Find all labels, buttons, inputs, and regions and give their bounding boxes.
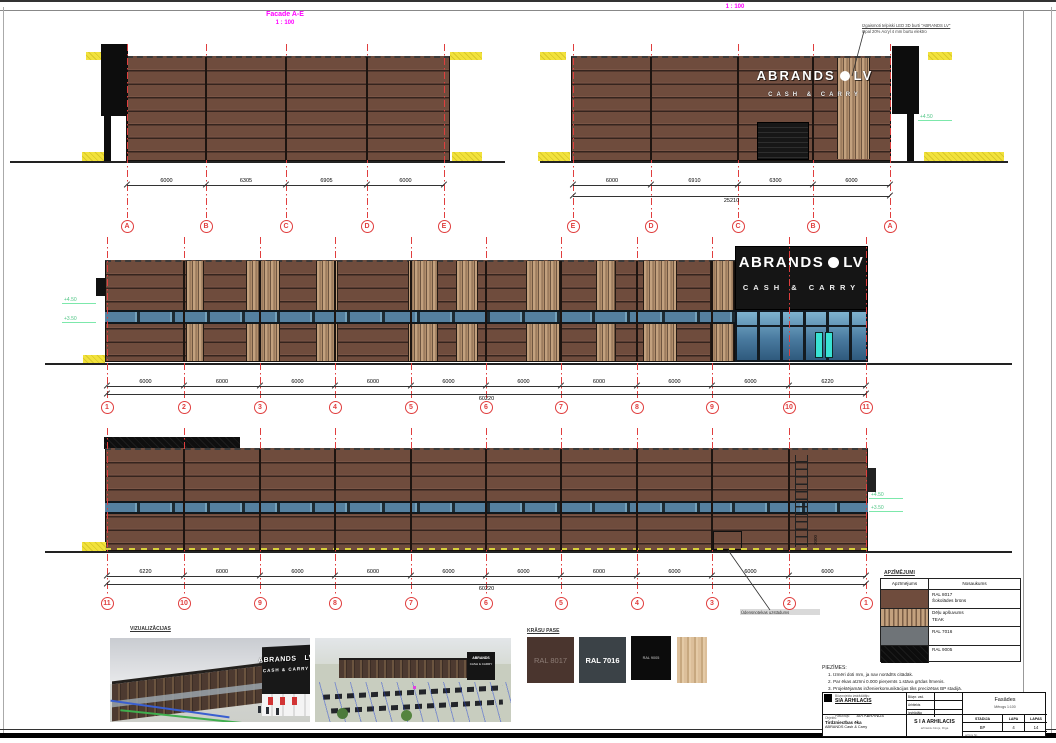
dim-label: 6000 xyxy=(504,569,544,575)
dim-tick xyxy=(408,383,414,389)
dim-label: 6910 xyxy=(675,178,715,184)
facade-ae-pylon xyxy=(101,44,128,116)
dim-label: 6000 xyxy=(126,379,166,385)
dim-label: 6000 xyxy=(579,569,619,575)
facade-ea-sign-line2: CASH & CARRY xyxy=(742,92,888,98)
grid-bubble: 11 xyxy=(101,597,114,610)
legend-header-symbol: Apzīmējums xyxy=(881,579,929,589)
sign-annotation-line1: Izgaismoti telpiski LED 3D burti "ABRAND… xyxy=(862,23,982,28)
ground-hatch xyxy=(83,355,105,363)
dim-tick xyxy=(124,182,130,188)
grid-bubble: 10 xyxy=(783,401,796,414)
sign-brand-text: ABRANDS xyxy=(757,68,836,83)
legend-row-text: RAL 7016 xyxy=(929,627,1020,645)
dim-tick xyxy=(786,573,792,579)
dim-tick xyxy=(887,193,893,199)
dim-label: 6300 xyxy=(756,178,796,184)
dim-line xyxy=(107,576,866,577)
tb-stage-label: STADIJA xyxy=(963,715,1003,722)
legend-row-name: Dēļu apšuvums xyxy=(932,610,1020,617)
tb-scale: Mērogs 1:100 xyxy=(963,705,1047,709)
dim-total-label: 60220 xyxy=(462,396,512,402)
drawing-sheet: { "titles": { "facade_ae": "Facade A-E",… xyxy=(0,0,1056,743)
dim-label: 6000 xyxy=(429,379,469,385)
facade-ea-scale: 1 : 100 xyxy=(700,4,770,10)
dim-tick xyxy=(570,193,576,199)
dim-tick xyxy=(709,383,715,389)
swatch-ral-9005: RAL 9005 xyxy=(631,636,671,680)
facade-ae-pylon-gap xyxy=(111,116,127,161)
facade-f1-wall-attachment xyxy=(96,278,105,296)
krasu-pase-label: KRĀSU PASE xyxy=(527,628,559,634)
render1-sign-line2: CASH & CARRY xyxy=(262,666,310,674)
dim-label: 6305 xyxy=(226,178,266,184)
swatch-ral-7016: RAL 7016 xyxy=(579,637,626,683)
legend-swatch xyxy=(881,646,929,664)
dim-tick xyxy=(181,573,187,579)
dim-label: 6000 xyxy=(386,178,426,184)
dim-label: 6000 xyxy=(353,569,393,575)
grid-bubble: 10 xyxy=(178,597,191,610)
visuals-label: VIZUALIZĀCIJAS xyxy=(130,626,171,632)
tb-sheets-label: LAPAS xyxy=(1025,715,1047,722)
frame-right-line xyxy=(1051,7,1052,737)
facade-f2-roof-box xyxy=(867,468,876,492)
dim-total-line xyxy=(107,584,866,585)
dim-label: 6905 xyxy=(307,178,347,184)
tb-sheet-title: Fasādes xyxy=(963,697,1047,703)
ground-hatch xyxy=(540,52,566,60)
dim-label: 6000 xyxy=(278,379,318,385)
dim-tick xyxy=(863,581,869,587)
legend-row-text: RAL 9005 xyxy=(929,646,1020,664)
render2-marker-magenta xyxy=(413,686,416,689)
legend-row-desc: TEAK xyxy=(932,617,1020,624)
grid-bubble: 7 xyxy=(555,401,568,414)
grid-bubble: D xyxy=(645,220,658,233)
sign-brand-text: ABRANDS xyxy=(739,254,825,271)
render-perspective-1: ABRANDS LV CASH & CARRY xyxy=(110,638,310,722)
tb-stage-header-row: STADIJA LAPA LAPAS xyxy=(963,715,1047,723)
grid-bubble: 2 xyxy=(178,401,191,414)
facade-ae-wall xyxy=(127,56,450,161)
facade-ea-roller-door xyxy=(757,122,809,160)
render2-building xyxy=(339,658,485,678)
grid-bubble: E xyxy=(567,220,580,233)
grid-bubble: C xyxy=(732,220,745,233)
grid-bubble: 11 xyxy=(860,401,873,414)
dim-total-label: 60220 xyxy=(462,586,512,592)
note-item: 2. Par ēkas atzīmi 0.000 pieņemts 1.stāv… xyxy=(828,679,1038,686)
tb-role-row: Būvpr. vad. xyxy=(907,693,962,701)
entrance-door-pane xyxy=(825,332,833,358)
grid-bubble: 1 xyxy=(101,401,114,414)
level-marker: +4.50 xyxy=(918,114,952,121)
legend-row: RAL 8017Šokolādes brūns xyxy=(881,589,1020,608)
dim-label: 6220 xyxy=(808,379,848,385)
tb-roles-table: Būvpr. vad.ArhitektsIzstrādāja xyxy=(907,693,963,715)
swatch-ral-8017-label: RAL 8017 xyxy=(534,656,567,665)
facade-f2-base-strip xyxy=(105,548,868,550)
dim-label: 6000 xyxy=(147,178,187,184)
sign-dot xyxy=(840,71,850,81)
notes-label: PIEZĪMES: xyxy=(822,665,847,671)
dim-tick xyxy=(863,391,869,397)
dim-label: 6000 xyxy=(202,569,242,575)
facade-f2-window-band xyxy=(105,501,868,514)
render1-sign-box: ABRANDS LV CASH & CARRY xyxy=(262,645,310,700)
tb-company-cell: Būvprojekta izstrādātājs: SIA ARHILACIS … xyxy=(823,693,907,715)
legend-swatch xyxy=(881,609,929,627)
render1-figure xyxy=(258,706,261,713)
grid-bubble: 9 xyxy=(254,597,267,610)
dim-tick xyxy=(332,383,338,389)
dim-label: 6000 xyxy=(353,379,393,385)
dim-tick xyxy=(558,573,564,579)
facade-f2-ladder xyxy=(795,455,808,547)
note-item: 1. Izmēri doti mm, ja nav norādīts citād… xyxy=(828,672,1038,679)
level-marker: +3.50 xyxy=(869,505,903,512)
dim-tick xyxy=(483,383,489,389)
grid-bubble: 3 xyxy=(706,597,719,610)
grid-bubble: C xyxy=(280,220,293,233)
render2-sign-line1: ABRANDS xyxy=(467,656,495,660)
grid-bubble: 8 xyxy=(329,597,342,610)
facade-f2-wall xyxy=(105,448,868,551)
title-block: Būvprojekta izstrādātājs: SIA ARHILACIS … xyxy=(822,692,1046,737)
sign-annotation-line2: Opal 20% Acryl 4 mm burtu elektro xyxy=(862,29,982,34)
facade-ae-pylon-column xyxy=(104,116,111,161)
grid-bubble: B xyxy=(200,220,213,233)
dim-tick xyxy=(634,573,640,579)
legend-row: RAL 9005 xyxy=(881,645,1020,664)
legend-row: RAL 7016 xyxy=(881,626,1020,645)
ground-hatch xyxy=(82,542,106,551)
grid-bubble: B xyxy=(807,220,820,233)
tb-role-value xyxy=(935,701,962,708)
dim-tick xyxy=(257,573,263,579)
level-marker: +3.50 xyxy=(62,316,96,323)
tb-role-label: Būvpr. vad. xyxy=(907,693,935,700)
frame-right-inner-line xyxy=(1023,10,1024,732)
grid-bubble: 4 xyxy=(329,401,342,414)
dim-total-line xyxy=(107,394,866,395)
facade-f1-sign-line2: CASH & CARRY xyxy=(735,283,868,292)
grid-bubble: 4 xyxy=(631,597,644,610)
legend-row-text: Dēļu apšuvumsTEAK xyxy=(929,609,1020,627)
legend-row-desc: Šokolādes brūns xyxy=(932,598,1020,605)
ground-hatch xyxy=(82,152,104,161)
legend-label: APZĪMĒJUMI xyxy=(884,570,915,576)
tb-archive: arhīvs Nr. xyxy=(963,732,1047,738)
dim-total-line xyxy=(573,196,890,197)
storefront-transom-line xyxy=(737,325,866,327)
sign-suffix-text: LV xyxy=(854,68,874,83)
facade-ea-pylon-column xyxy=(907,114,914,161)
grid-bubble: A xyxy=(884,220,897,233)
storefront-mullions xyxy=(737,312,866,360)
dim-tick xyxy=(570,182,576,188)
swatch-ral-8017: RAL 8017 xyxy=(527,637,574,683)
tb-sheet-title-cell: Fasādes Mērogs 1:100 xyxy=(963,693,1047,715)
tb-top-band: Būvprojekta izstrādātājs: SIA ARHILACIS … xyxy=(823,693,1047,715)
facade-ae-title: Facade A-E xyxy=(230,11,340,18)
sign-suffix-text: LV xyxy=(305,655,310,662)
tb-object-cell: Objekts: Tirdzniecības ēka ABRANDS Cash … xyxy=(823,715,907,737)
swatch-ral-9005-label: RAL 9005 xyxy=(643,656,660,660)
ground-line xyxy=(10,161,505,163)
render1-poster xyxy=(268,697,273,705)
dim-line xyxy=(127,185,444,186)
grid-bubble: 6 xyxy=(480,401,493,414)
legend-row: Dēļu apšuvumsTEAK xyxy=(881,608,1020,627)
dim-tick xyxy=(257,383,263,389)
tb-logo xyxy=(824,694,832,702)
facade-f1-window-band xyxy=(105,310,735,324)
dim-tick xyxy=(709,573,715,579)
dim-total-label: 25210 xyxy=(707,198,757,204)
tb-bottom-band: Objekts: Tirdzniecības ēka ABRANDS Cash … xyxy=(823,715,1047,737)
dim-label: 6000 xyxy=(655,379,695,385)
level-marker: +4.50 xyxy=(869,492,903,499)
legend-header-row: Apzīmējums Nosaukums xyxy=(881,579,1020,589)
legend-row-text: RAL 8017Šokolādes brūns xyxy=(929,590,1020,608)
dim-tick xyxy=(104,573,110,579)
frame-top-line-2 xyxy=(0,10,1056,11)
tb-stage-value: BP xyxy=(963,723,1003,731)
dim-label: 6000 xyxy=(429,569,469,575)
tb-sheets-value: 14 xyxy=(1025,723,1047,731)
grid-bubble: 1 xyxy=(860,597,873,610)
dim-tick xyxy=(863,383,869,389)
dim-tick xyxy=(558,383,564,389)
grid-bubble: A xyxy=(121,220,134,233)
dim-tick xyxy=(283,182,289,188)
grid-bubble: 8 xyxy=(631,401,644,414)
frame-top-line xyxy=(0,0,1056,2)
dim-tick xyxy=(887,182,893,188)
ground-hatch xyxy=(924,152,1004,161)
dim-tick xyxy=(203,182,209,188)
dim-line xyxy=(107,386,866,387)
tb-firm-cell: S I A ARHILACIS arhitektu birojs, Rīga xyxy=(907,715,963,737)
grid-bubble: D xyxy=(361,220,374,233)
dim-tick xyxy=(104,391,110,397)
dim-label: 6000 xyxy=(731,569,771,575)
render2-sign-box: ABRANDS CASH & CARRY xyxy=(467,652,495,680)
tb-stage-cell: STADIJA LAPA LAPAS BP 4 14 arhīvs Nr. xyxy=(963,715,1047,737)
dim-label: 6000 xyxy=(832,178,872,184)
dim-tick xyxy=(104,383,110,389)
dim-tick xyxy=(408,573,414,579)
dim-label: 6000 xyxy=(731,379,771,385)
ground-hatch xyxy=(538,152,570,161)
tb-stage-values-row: BP 4 14 xyxy=(963,723,1047,732)
grid-bubble: 6 xyxy=(480,597,493,610)
dim-tick xyxy=(786,383,792,389)
dim-tick xyxy=(483,573,489,579)
legend-row-name: RAL 9005 xyxy=(932,647,1020,654)
ground-hatch xyxy=(928,52,952,60)
dim-tick xyxy=(104,581,110,587)
grid-bubble: 9 xyxy=(706,401,719,414)
legend-row-name: RAL 7016 xyxy=(932,629,1020,636)
swatch-ral-7016-label: RAL 7016 xyxy=(585,656,619,665)
door-note-label: Ūdensnotekas uzstādums xyxy=(740,609,820,615)
render2-tree xyxy=(337,708,348,719)
dim-tick xyxy=(735,182,741,188)
frame-left-line xyxy=(3,7,4,737)
sign-brand-text: ABRANDS xyxy=(258,655,297,664)
dim-tick xyxy=(810,182,816,188)
dim-label: 6000 xyxy=(808,569,848,575)
ground-hatch xyxy=(450,52,482,60)
tb-sheet-label: LAPA xyxy=(1003,715,1025,722)
dim-tick xyxy=(863,573,869,579)
ladder-dim-label: 3000 xyxy=(813,535,818,545)
grid-bubble: 7 xyxy=(405,597,418,610)
facade-ea-sign-line1: ABRANDS LV xyxy=(742,68,888,83)
dim-label: 6000 xyxy=(579,379,619,385)
facade-f1-storefront xyxy=(735,310,868,362)
tb-role-label: Arhitekts xyxy=(907,701,935,708)
sign-suffix-text: LV xyxy=(843,254,864,271)
tb-firm: S I A ARHILACIS xyxy=(907,719,962,725)
ground-line xyxy=(45,363,1012,365)
tb-role-value xyxy=(935,693,962,700)
facade-f1-sign-line1: ABRANDS LV xyxy=(735,254,868,271)
legend-rows: RAL 8017Šokolādes brūnsDēļu apšuvumsTEAK… xyxy=(881,589,1020,663)
ground-line xyxy=(45,551,1012,553)
grid-bubble: E xyxy=(438,220,451,233)
render2-sign-line2: CASH & CARRY xyxy=(467,662,495,666)
dim-label: 6220 xyxy=(126,569,166,575)
dim-tick xyxy=(441,182,447,188)
dim-tick xyxy=(364,182,370,188)
grid-bubble: 5 xyxy=(405,401,418,414)
dim-label: 6000 xyxy=(278,569,318,575)
ground-line xyxy=(540,161,1008,163)
legend-swatch xyxy=(881,627,929,645)
dim-line xyxy=(573,185,890,186)
entrance-door-pane xyxy=(815,332,823,358)
ground-hatch xyxy=(452,152,482,161)
tb-company: SIA ARHILACIS xyxy=(835,698,904,704)
dim-tick xyxy=(648,182,654,188)
legend-swatch xyxy=(881,590,929,608)
grid-bubble: 5 xyxy=(555,597,568,610)
facade-ae-scale: 1 : 100 xyxy=(230,20,340,26)
grid-bubble: 3 xyxy=(254,401,267,414)
level-marker: +4.50 xyxy=(62,297,96,304)
render-aerial-2: ABRANDS CASH & CARRY xyxy=(315,638,511,722)
tb-sheet-value: 4 xyxy=(1003,723,1025,731)
facade-ea-pylon xyxy=(892,46,919,114)
dim-tick xyxy=(634,383,640,389)
sign-dot xyxy=(828,257,839,268)
dim-tick xyxy=(181,383,187,389)
render1-sign-line1: ABRANDS LV xyxy=(262,655,310,665)
tb-object-sub: ABRANDS Cash & Carry xyxy=(825,725,904,729)
dim-label: 6000 xyxy=(655,569,695,575)
dim-label: 6000 xyxy=(592,178,632,184)
legend-header-name: Nosaukums xyxy=(929,579,1020,589)
tb-role-row: Arhitekts xyxy=(907,701,962,709)
dim-tick xyxy=(332,573,338,579)
legend-table: Apzīmējums Nosaukums RAL 8017Šokolādes b… xyxy=(880,578,1021,662)
tb-firm-sub: arhitektu birojs, Rīga xyxy=(907,726,962,730)
swatch-teak xyxy=(677,637,707,683)
dim-label: 6000 xyxy=(202,379,242,385)
dim-label: 6000 xyxy=(504,379,544,385)
